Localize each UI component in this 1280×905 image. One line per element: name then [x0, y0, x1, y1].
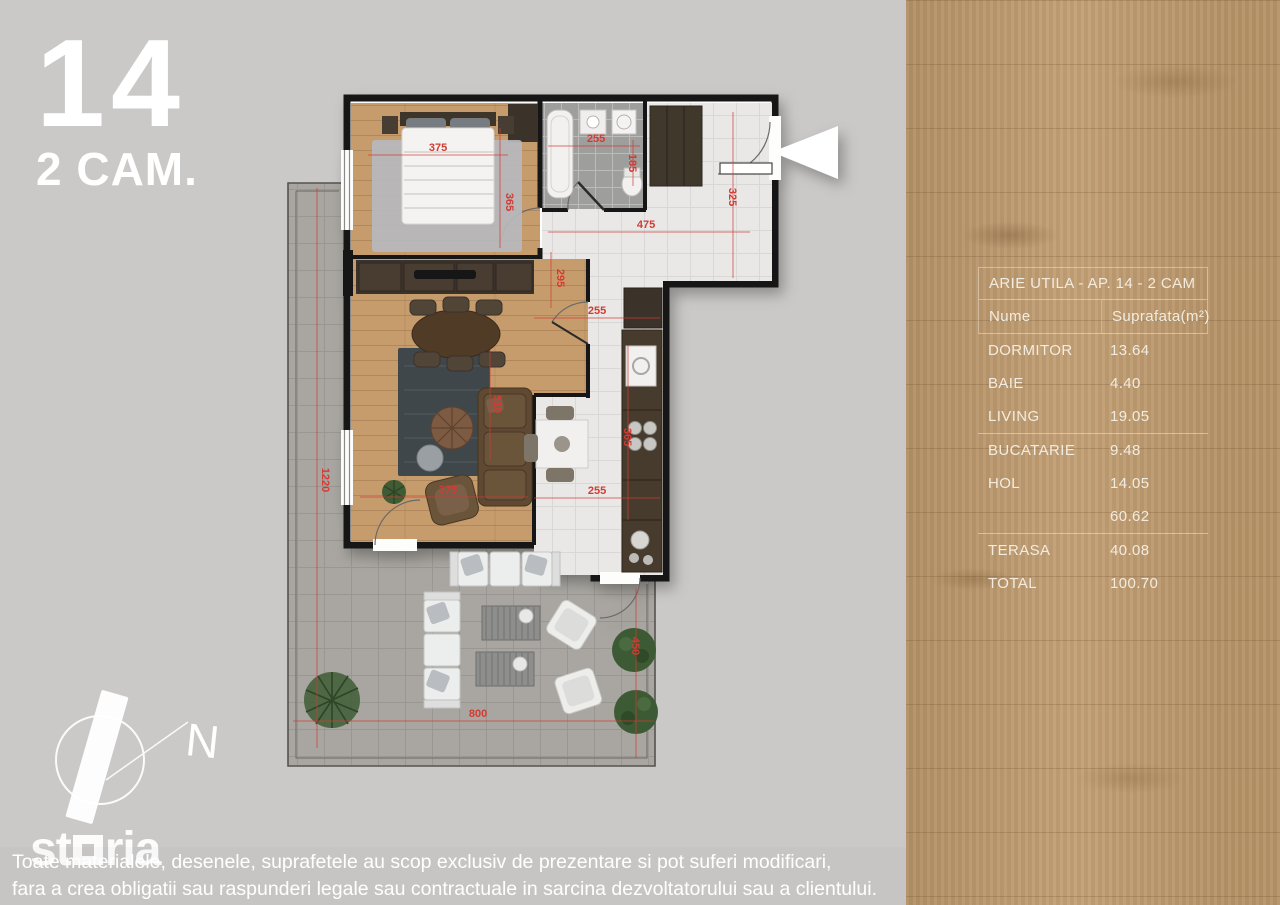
entry-arrow-icon [772, 126, 838, 179]
tv-wardrobe-unit [356, 260, 534, 294]
room-name: TOTAL [978, 567, 1100, 600]
area-table-title: ARIE UTILA - AP. 14 - 2 CAM [978, 267, 1208, 300]
apartment-number: 14 [36, 22, 198, 146]
dimension-label: 185 [626, 154, 638, 172]
room-name: HOL [978, 467, 1100, 500]
area-table-row: LIVING19.05 [978, 400, 1208, 433]
dimension-label: 365 [503, 193, 515, 211]
north-label: N [183, 713, 221, 768]
area-table-row: 60.62 [978, 500, 1208, 533]
dimension-label: 510 [491, 395, 503, 413]
area-table-row: BAIE4.40 [978, 367, 1208, 400]
room-area: 100.70 [1100, 567, 1208, 600]
compass: N [56, 690, 222, 825]
apartment-label: 14 2 CAM. [36, 22, 198, 196]
area-table-row: DORMITOR13.64 [978, 334, 1208, 367]
room-name [978, 500, 1100, 533]
room-area: 19.05 [1100, 400, 1208, 433]
column-area: Suprafata(m²) [1102, 300, 1210, 333]
area-table-rows: DORMITOR13.64BAIE4.40LIVING19.05BUCATARI… [978, 334, 1208, 600]
dimension-label: 365 [621, 428, 633, 446]
compass-needle-icon [65, 690, 128, 825]
dimension-label: 475 [637, 219, 655, 231]
room-name: BAIE [978, 367, 1100, 400]
dimension-label: 255 [588, 485, 606, 497]
dimension-label: 295 [554, 269, 566, 287]
entry-closet [650, 106, 702, 186]
dimension-label: 325 [726, 188, 738, 206]
room-name: TERASA [978, 534, 1100, 567]
dimension-label: 800 [469, 708, 487, 720]
room-name: DORMITOR [978, 334, 1100, 367]
area-table: ARIE UTILA - AP. 14 - 2 CAM Nume Suprafa… [978, 267, 1208, 600]
room-area: 14.05 [1100, 467, 1208, 500]
apartment-type: 2 CAM. [36, 142, 198, 196]
room-area: 60.62 [1100, 500, 1208, 533]
dimension-label: 1220 [319, 468, 331, 492]
area-table-row: HOL14.05 [978, 467, 1208, 500]
area-table-row: TERASA40.08 [978, 533, 1208, 567]
room-name: LIVING [978, 400, 1100, 433]
dimension-label: 375 [429, 142, 447, 154]
area-table-row: TOTAL100.70 [978, 567, 1208, 600]
disclaimer: Toate materialele, desenele, suprafetele… [0, 847, 906, 905]
dimension-label: 255 [588, 305, 606, 317]
listing-floorplan-image: { "apartment": { "number": "14", "type_l… [0, 0, 1280, 905]
dimension-label: 375 [439, 484, 457, 496]
room-area: 9.48 [1100, 434, 1208, 467]
room-name: BUCATARIE [978, 434, 1100, 467]
column-name: Nume [979, 300, 1102, 333]
room-area: 40.08 [1100, 534, 1208, 567]
room-area: 4.40 [1100, 367, 1208, 400]
room-area: 13.64 [1100, 334, 1208, 367]
disclaimer-line2: fara a crea obligatii sau raspunderi leg… [12, 876, 906, 903]
disclaimer-line1: Toate materialele, desenele, suprafetele… [12, 849, 906, 876]
area-table-header: Nume Suprafata(m²) [978, 300, 1208, 334]
area-table-row: BUCATARIE9.48 [978, 433, 1208, 467]
dimension-label: 450 [629, 637, 641, 655]
dimension-label: 255 [587, 133, 605, 145]
